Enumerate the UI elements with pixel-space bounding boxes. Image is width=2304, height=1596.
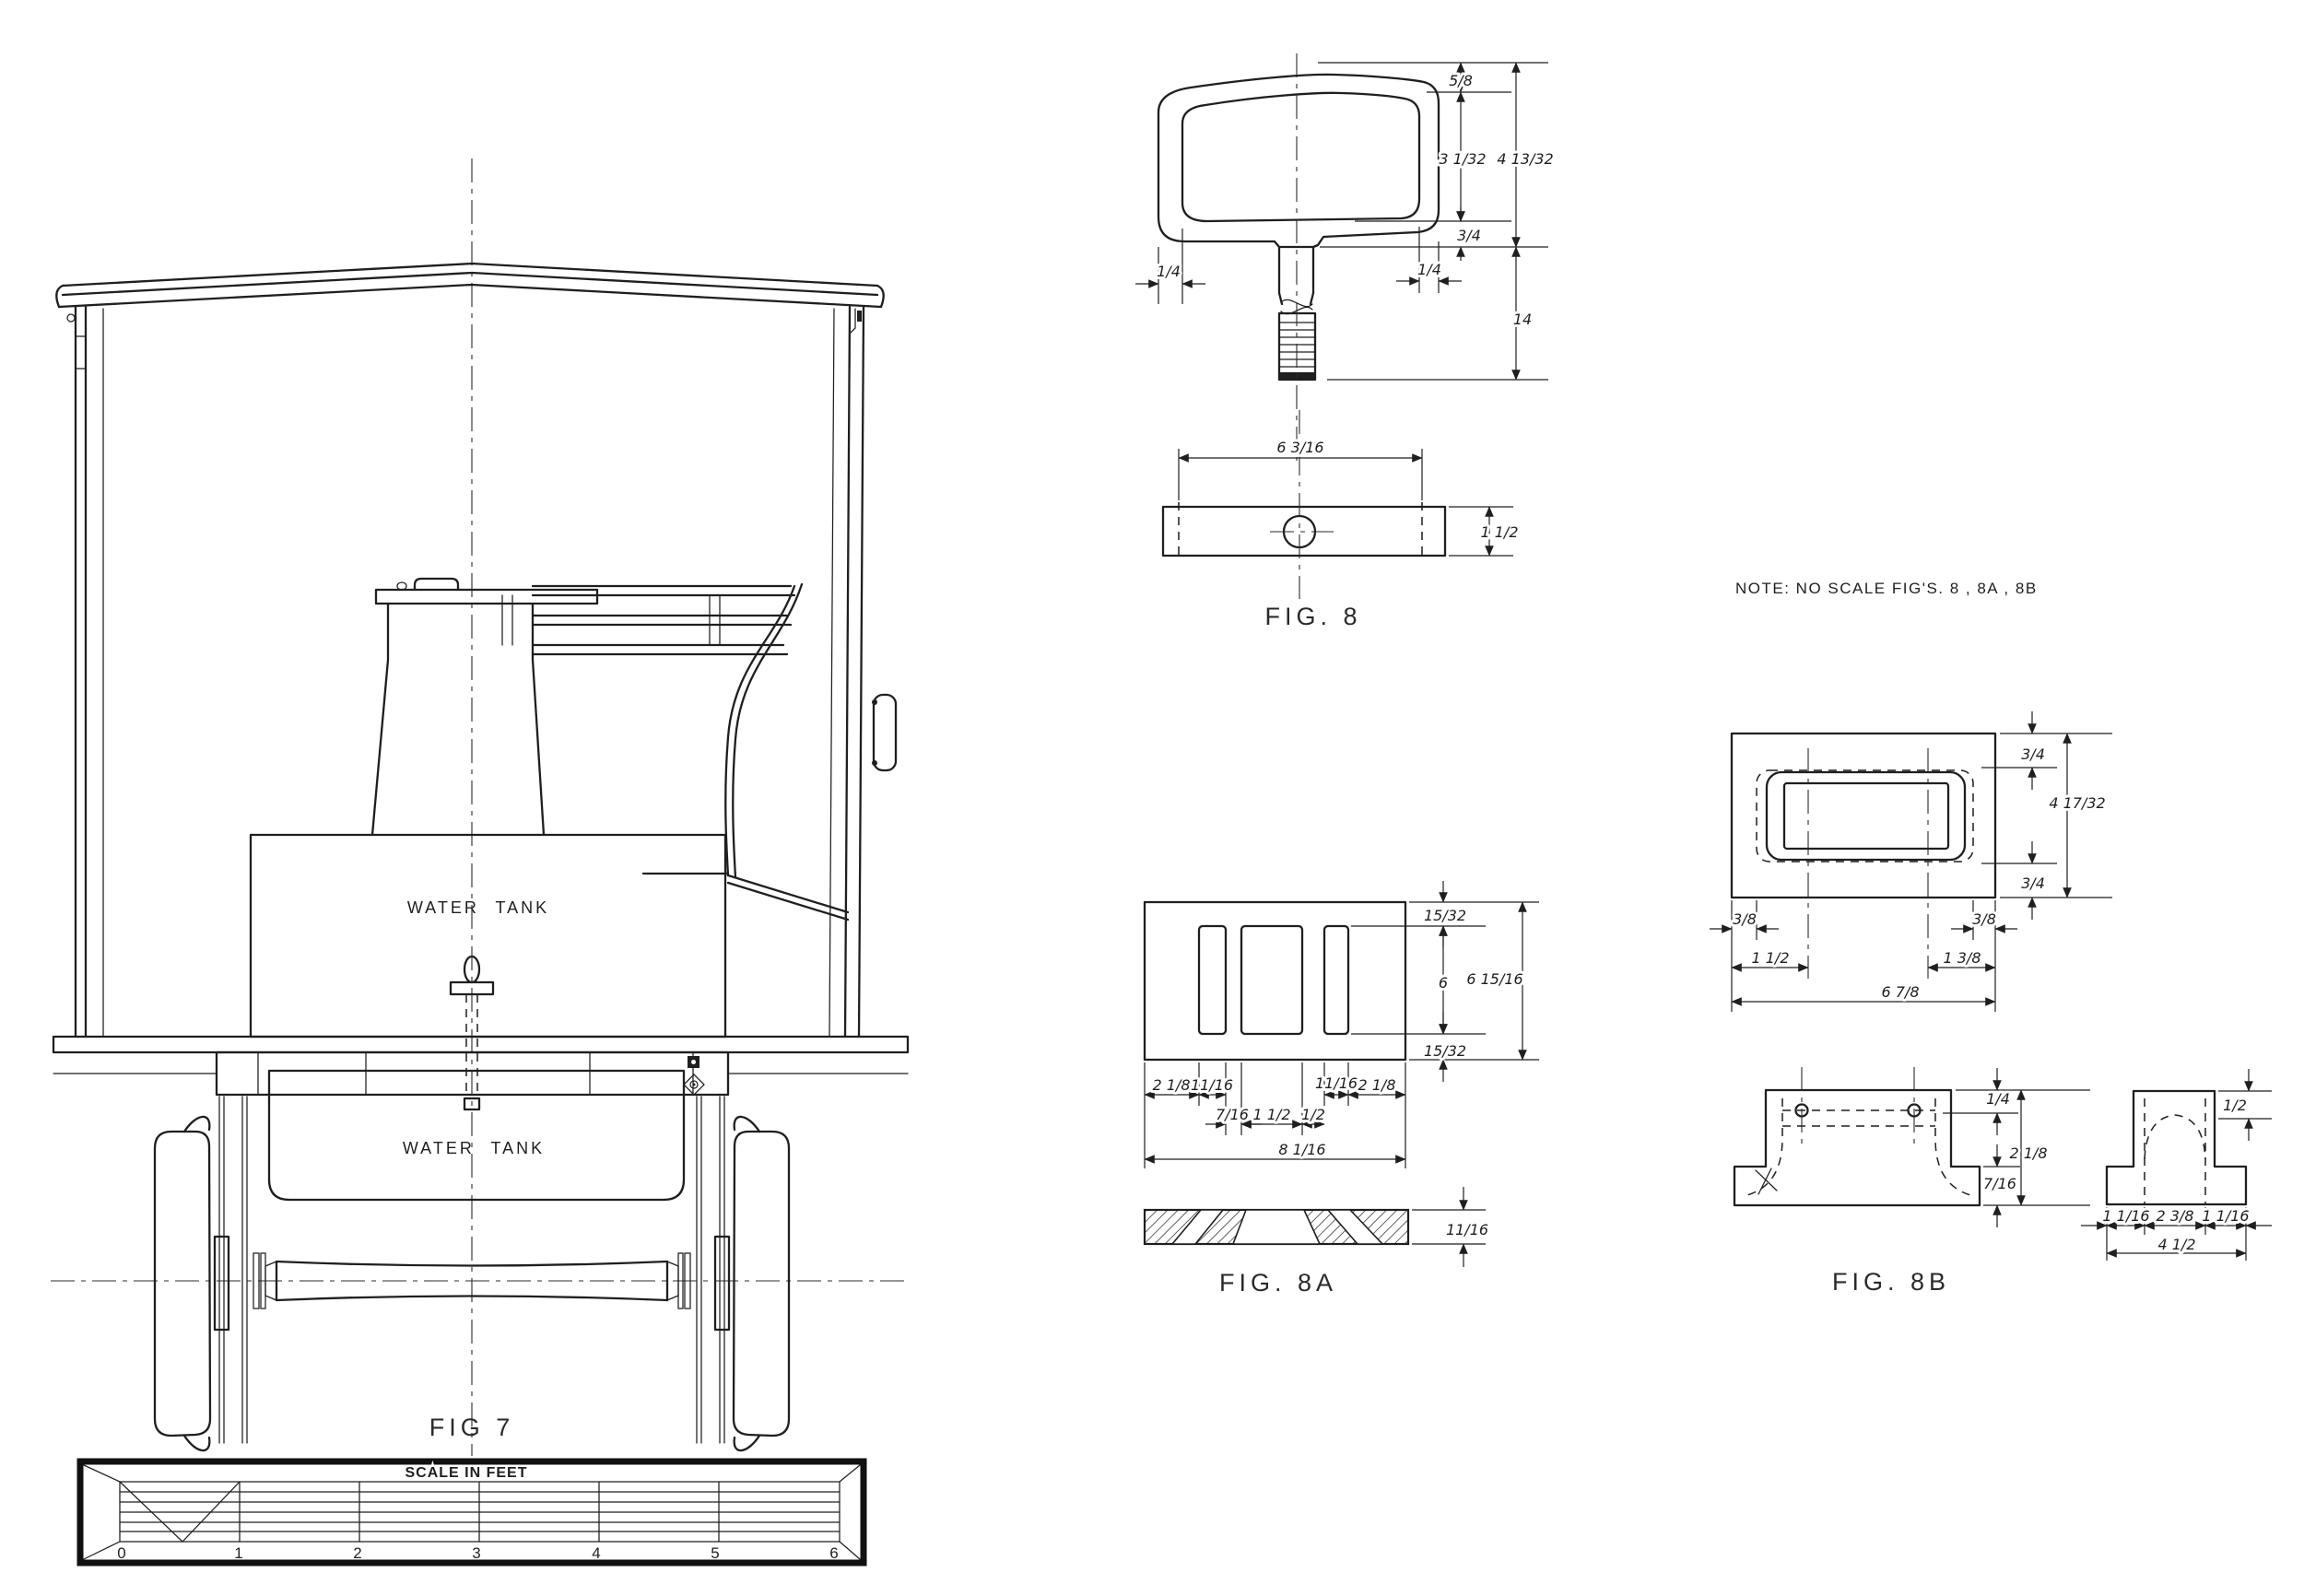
dim-bar-length: 6 3/16 xyxy=(1276,439,1323,456)
fig7-bunker-rails xyxy=(502,584,848,920)
fig7-buffer-beam xyxy=(53,1037,908,1095)
dim-elev-overall-height: 2 1/8 xyxy=(2009,1144,2047,1162)
fig8b-label: FIG. 8B xyxy=(1832,1268,1950,1296)
dim-overall-height: 6 15/16 xyxy=(1466,970,1522,988)
scale-tick-6: 6 xyxy=(829,1544,838,1562)
fig8b-side-section: 1/2 1 1/16 2 3/8 1 1/16 4 1/2 xyxy=(2081,1069,2272,1261)
scale-tick-4: 4 xyxy=(592,1544,600,1562)
dim-plan-top-margin: 3/4 xyxy=(2021,745,2045,763)
dim-elev-top-thickness: 1/4 xyxy=(1986,1090,2010,1108)
dim-right-margin: 2 1/8 xyxy=(1358,1076,1395,1094)
door-handle xyxy=(874,695,896,770)
fig8-label: FIG. 8 xyxy=(1264,603,1361,630)
fig7-label: FIG 7 xyxy=(429,1414,515,1441)
dim-plan-overall-width: 6 7/8 xyxy=(1881,983,1919,1001)
dim-left-slot-width: 11/16 xyxy=(1191,1076,1233,1094)
dim-slot-height: 6 xyxy=(1439,974,1448,992)
fig8b-group: 3/4 4 17/32 3/4 3/8 3/8 1 1/2 1 3/8 6 7/… xyxy=(1710,711,2272,1296)
fig7-scale-bar: SCALE IN FEET 0 1 2 3 4 5 6 xyxy=(80,1461,864,1563)
dim-head-overall-height: 4 13/32 xyxy=(1497,150,1553,168)
upper-water-tank-label: WATER TANK xyxy=(407,898,549,917)
scale-tick-0: 0 xyxy=(117,1544,125,1562)
dim-top-margin: 15/32 xyxy=(1424,907,1466,924)
dim-web-left: 7/16 xyxy=(1216,1106,1249,1123)
fig7-left-wall xyxy=(67,307,103,1037)
fig8a-label: FIG. 8A xyxy=(1219,1269,1337,1297)
dim-center-slot-width: 1 1/2 xyxy=(1252,1106,1290,1123)
fig7-right-wheel xyxy=(678,1117,789,1450)
dim-overall-width: 8 1/16 xyxy=(1278,1141,1325,1158)
fig8b-front-elevation: 1/4 2 1/8 7/16 xyxy=(1734,1067,2090,1227)
dim-side-left: 1/4 xyxy=(1157,263,1181,280)
dim-head-bottom-offset: 3/4 xyxy=(1457,227,1481,244)
dim-bar-depth: 1 1/2 xyxy=(1480,523,1518,541)
fig8-side-view: 6 3/16 1 1/2 xyxy=(1163,410,1519,599)
dim-stem-length: 14 xyxy=(1513,311,1532,328)
dim-sec-overall-width: 4 1/2 xyxy=(2157,1236,2195,1253)
chimney-cap-handle xyxy=(415,579,458,590)
fig8-head-front-view xyxy=(1158,53,1439,461)
fig8a-dimensions: 15/32 6 6 15/16 15/32 2 1/8 11/16 11/16 … xyxy=(1145,881,1539,1168)
scale-tick-2: 2 xyxy=(353,1544,361,1562)
fig7-left-wheel xyxy=(155,1117,265,1450)
fig8a-group: 15/32 6 6 15/16 15/32 2 1/8 11/16 11/16 … xyxy=(1145,881,1539,1297)
fig7-roof xyxy=(56,264,883,307)
drawing-canvas: WATER TANK WATER TANK xyxy=(0,0,2304,1596)
dim-elev-base-height: 7/16 xyxy=(1983,1175,2016,1192)
dim-side-right: 1/4 xyxy=(1417,261,1441,278)
dim-left-margin: 2 1/8 xyxy=(1152,1076,1190,1094)
lower-water-tank-label: WATER TANK xyxy=(403,1139,545,1157)
dim-thickness: 11/16 xyxy=(1446,1221,1488,1238)
dim-right-slot-width: 11/16 xyxy=(1315,1074,1358,1092)
scale-tick-3: 3 xyxy=(472,1544,480,1562)
fig8a-section-view: 11/16 xyxy=(1145,1187,1488,1267)
scale-tick-5: 5 xyxy=(711,1544,719,1562)
scale-bar-title: SCALE IN FEET xyxy=(405,1465,527,1481)
dim-plan-left-center: 1 1/2 xyxy=(1751,949,1789,967)
dim-sec-center-width: 2 3/8 xyxy=(2156,1207,2193,1225)
dim-bottom-margin: 15/32 xyxy=(1424,1042,1466,1060)
scale-tick-1: 1 xyxy=(234,1544,242,1562)
fig7-lower-water-tank xyxy=(269,1071,684,1200)
dim-plan-left-inset: 3/8 xyxy=(1733,910,1757,928)
dim-plan-right-center: 1 3/8 xyxy=(1943,949,1981,967)
fig7-group: WATER TANK WATER TANK xyxy=(51,158,908,1563)
dim-head-top-offset: 5/8 xyxy=(1449,72,1473,89)
dim-plan-overall-height: 4 17/32 xyxy=(2049,794,2105,812)
fig7-chimney xyxy=(372,579,597,835)
fig8-group: 5/8 3 1/32 4 13/32 3/4 1/4 1/4 14 6 3/16… xyxy=(1135,53,1554,630)
fig8b-plan-view xyxy=(1732,733,1995,979)
no-scale-note: NOTE: NO SCALE FIG'S. 8 , 8A , 8B xyxy=(1735,580,2038,597)
dim-plan-bottom-margin: 3/4 xyxy=(2021,874,2045,892)
dim-web-right: 1/2 xyxy=(1301,1106,1325,1123)
dim-sec-left-width: 1 1/16 xyxy=(2102,1207,2149,1225)
fig7-upper-water-tank: WATER TANK xyxy=(251,835,725,1109)
dim-sec-top-thickness: 1/2 xyxy=(2223,1097,2247,1114)
dim-head-inner-height: 3 1/32 xyxy=(1439,150,1486,168)
blueprint-sheet: WATER TANK WATER TANK xyxy=(0,0,2304,1596)
dim-sec-right-width: 1 1/16 xyxy=(2202,1207,2249,1225)
fig7-right-wall xyxy=(829,307,896,1037)
corner-lamp-iron-icon xyxy=(67,314,75,322)
dim-plan-right-inset: 3/8 xyxy=(1972,910,1996,928)
